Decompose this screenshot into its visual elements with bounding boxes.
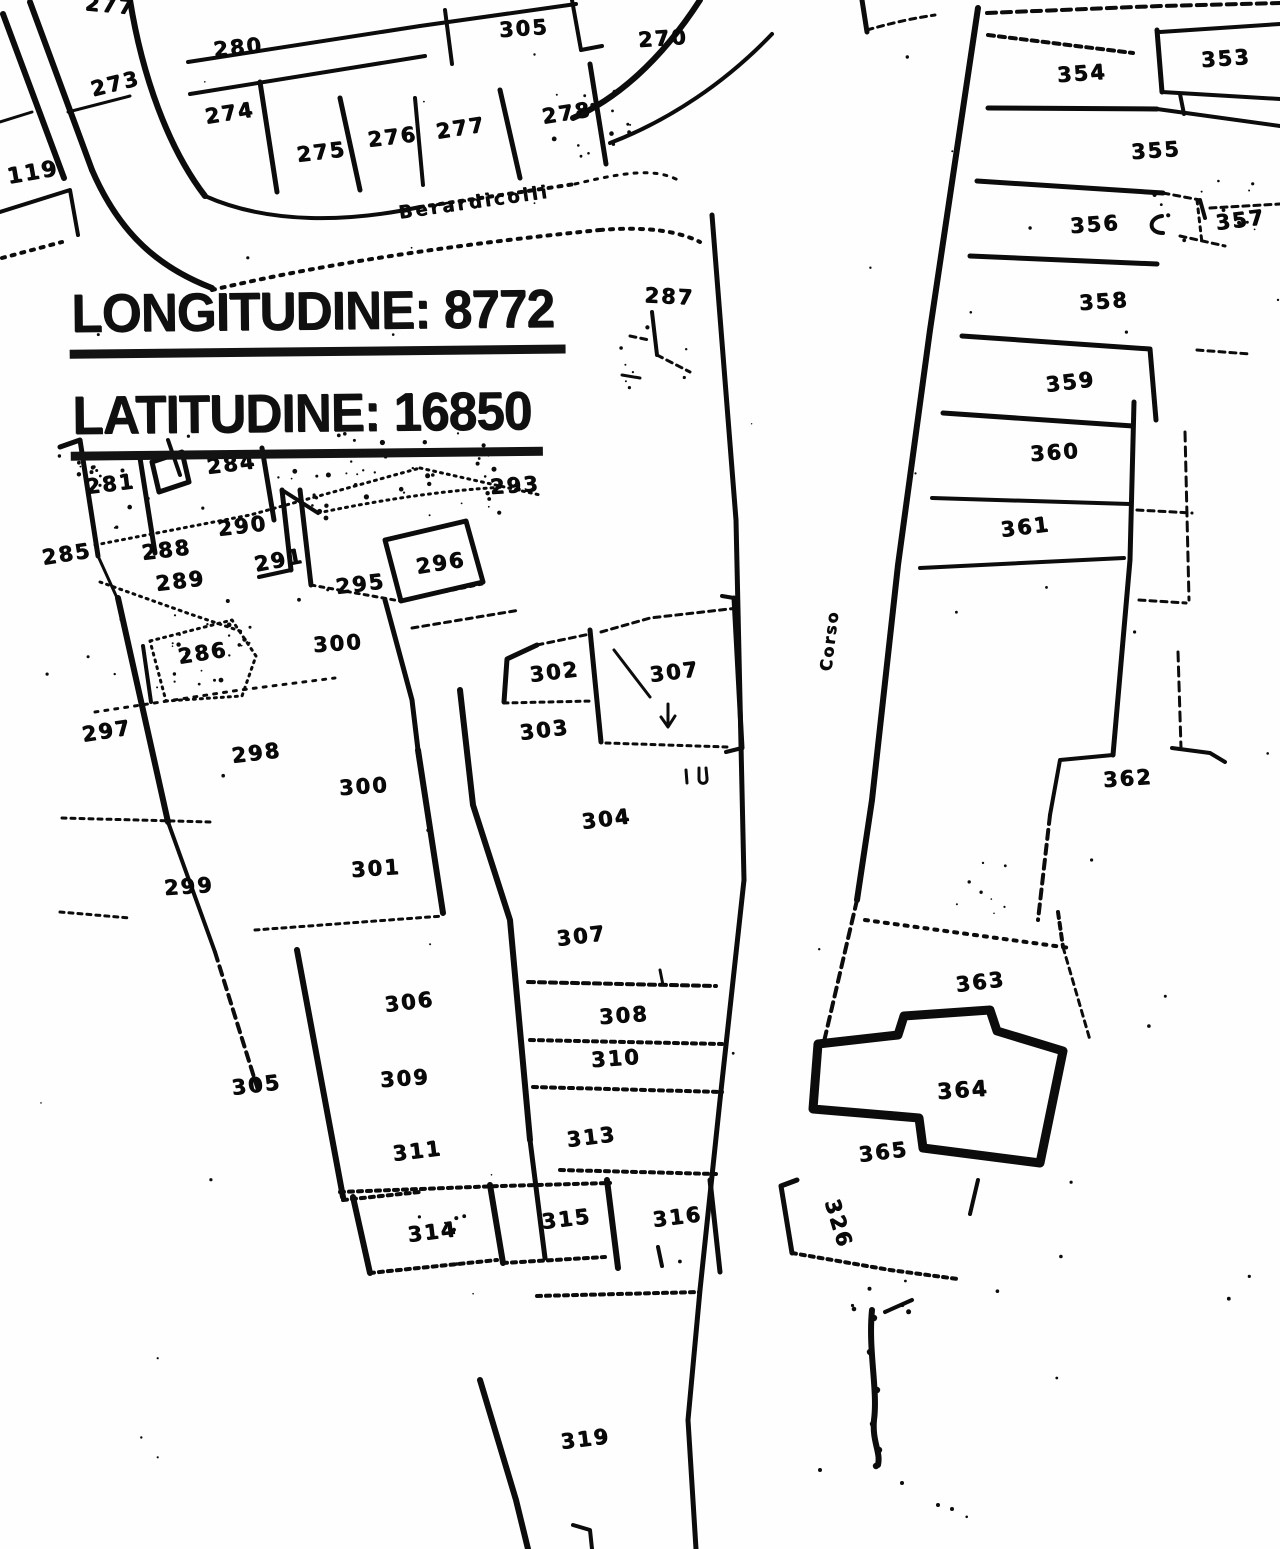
parcel-label-285: 285 [40, 538, 93, 570]
parcel-label-277: 277 [84, 0, 136, 19]
parcel-label-298: 298 [230, 738, 282, 768]
parcel-label-306: 306 [383, 987, 435, 1017]
parcel-label-316: 316 [651, 1202, 703, 1232]
parcel-label-274: 274 [203, 97, 256, 129]
parcel-label-309: 309 [379, 1065, 430, 1092]
parcel-label-364: 364 [936, 1076, 990, 1105]
coordinates-overlay: LONGITUDINE: 8772 LATITUDINE: 16850 [69, 277, 593, 486]
parcel-label-305: 305 [498, 15, 549, 42]
parcel-label-307: 307 [648, 657, 700, 687]
parcel-label-358: 358 [1078, 288, 1129, 315]
parcel-label-356: 356 [1069, 211, 1120, 238]
parcel-label-276: 276 [366, 122, 418, 152]
parcel-label-286: 286 [176, 637, 229, 669]
parcel-label-119: 119 [5, 156, 60, 190]
latitude-label: LATITUDINE: [72, 382, 380, 445]
parcel-label-361: 361 [999, 512, 1051, 542]
parcel-label-290: 290 [216, 511, 268, 541]
parcel-label-302: 302 [528, 657, 580, 687]
parcel-label-296: 296 [414, 547, 467, 579]
parcel-label-307: 307 [555, 921, 607, 951]
parcel-label-354: 354 [1056, 60, 1107, 87]
longitude-value: 8772 [443, 279, 554, 340]
parcel-label-319: 319 [559, 1424, 611, 1454]
cadastral-map-scan: 2772732803052702742752762772781192872812… [0, 0, 1280, 1549]
longitude-label: LONGITUDINE: [71, 280, 431, 344]
parcel-label-288: 288 [140, 535, 192, 565]
longitude-line: LONGITUDINE: 8772 [69, 278, 566, 359]
parcel-label-295: 295 [334, 569, 386, 599]
parcel-label-301: 301 [350, 855, 401, 882]
parcel-label-363: 363 [954, 967, 1006, 997]
parcel-label-300: 300 [312, 630, 363, 657]
parcel-label-314: 314 [406, 1217, 458, 1247]
parcel-label-278: 278 [540, 97, 593, 129]
parcel-label-311: 311 [391, 1136, 443, 1166]
parcel-label-277: 277 [434, 112, 487, 144]
parcel-label-280: 280 [212, 33, 264, 62]
latitude-line: LATITUDINE: 16850 [70, 380, 543, 461]
parcel-label-353: 353 [1200, 45, 1251, 72]
parcel-label-355: 355 [1130, 137, 1181, 164]
parcel-label-275: 275 [295, 137, 347, 167]
parcel-label-357: 357 [1214, 205, 1266, 235]
parcel-label-359: 359 [1044, 367, 1096, 397]
parcel-label-315: 315 [540, 1204, 592, 1234]
parcel-label-273: 273 [88, 66, 142, 101]
parcel-label-299: 299 [163, 873, 214, 900]
parcel-label-360: 360 [1029, 439, 1080, 466]
parcel-label-289: 289 [154, 566, 206, 596]
parcel-label-326: 326 [820, 1196, 858, 1251]
parcel-label-303: 303 [518, 715, 570, 745]
parcel-label-300: 300 [338, 773, 389, 800]
parcel-label-313: 313 [565, 1122, 617, 1152]
parcel-label-304: 304 [580, 804, 632, 834]
parcel-label-270: 270 [637, 25, 688, 52]
parcel-label-365: 365 [857, 1137, 909, 1167]
parcel-labels-layer: 2772732803052702742752762772781192872812… [0, 0, 1280, 1549]
latitude-value: 16850 [393, 381, 532, 442]
parcel-label-287: 287 [644, 283, 695, 310]
parcel-label-305: 305 [230, 1070, 282, 1100]
parcel-label-308: 308 [598, 1002, 649, 1029]
parcel-label-310: 310 [590, 1045, 641, 1072]
parcel-label-291: 291 [252, 543, 306, 576]
parcel-label-362: 362 [1102, 765, 1153, 792]
parcel-label-297: 297 [80, 715, 133, 747]
